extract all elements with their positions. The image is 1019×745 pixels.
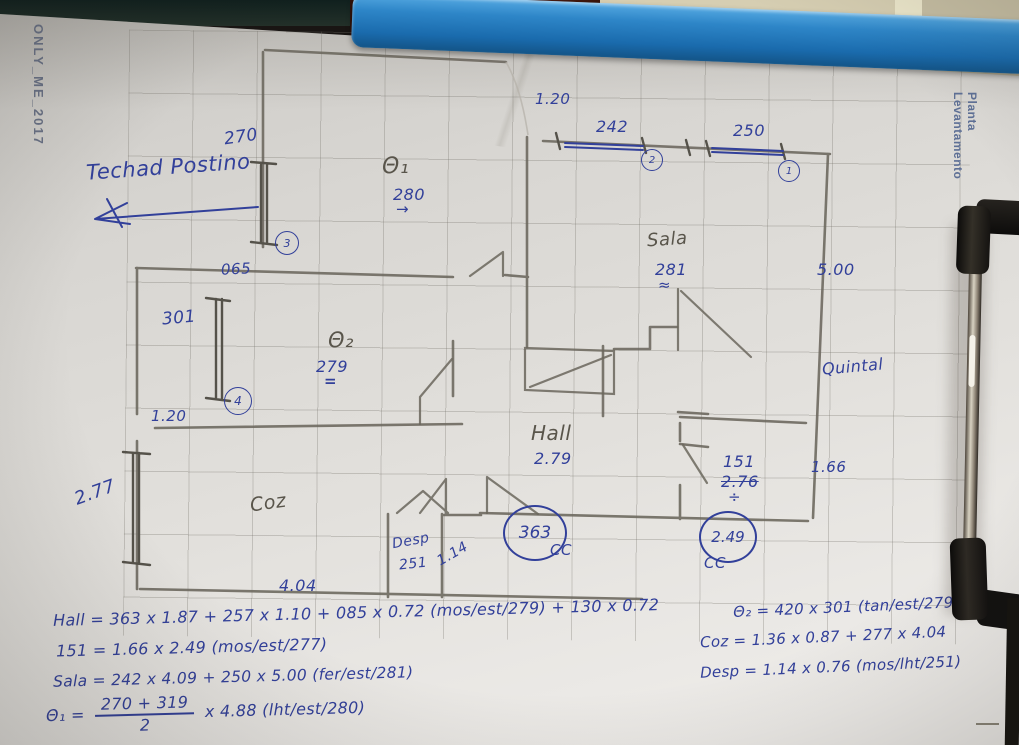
dim-166: 1.66 [811, 458, 846, 476]
door-width-363: 363 [503, 505, 567, 561]
dim-151-mark: ÷ [728, 488, 741, 506]
door-swings [397, 252, 751, 514]
room-q1-label: Θ₁ [382, 154, 409, 179]
door-363-value: 363 [519, 523, 551, 543]
room-q2-label: Θ₂ [328, 328, 354, 352]
clip-bottom-grip [950, 537, 989, 620]
window-marker-2: 2 [641, 149, 663, 171]
room-151-label: 151 [723, 452, 755, 471]
marker-2-number: 2 [649, 155, 655, 166]
plan-side-title: Planta Levantamento [951, 92, 979, 179]
door-width-249: 2.49 [699, 511, 757, 563]
dim-window-242: 242 [596, 117, 628, 136]
dim-500: 5.00 [817, 260, 855, 279]
dim-desp-height: 251 [398, 555, 428, 574]
room-hall-label: Hall [531, 421, 571, 445]
marker-4-number: 4 [234, 394, 242, 408]
dim-gap-120: 1.20 [535, 90, 570, 108]
dim-window-250: 250 [733, 121, 765, 140]
marker-3-number: 3 [284, 237, 291, 250]
window-marker-4: 4 [224, 387, 252, 415]
stairs-block [525, 348, 614, 394]
q2-height-mark: = [324, 372, 337, 390]
direction-arrow [95, 199, 258, 227]
marker-1-number: 1 [786, 166, 792, 177]
clip-top-grip [956, 205, 991, 274]
formula-q1-rhs: x 4.88 (lht/est/280) [205, 698, 366, 721]
paper-right-edge-shadow [1005, 598, 1019, 745]
formula-q1: Θ₁ = 270 + 319 2 x 4.88 (lht/est/280) [46, 688, 366, 737]
door-249-value: 2.49 [711, 528, 744, 546]
sala-height-mark: ≈ [658, 276, 671, 294]
formula-q1-denominator: 2 [95, 714, 195, 736]
room-sala-label: Sala [646, 228, 688, 252]
window-marker-3: 3 [275, 231, 299, 255]
formula-q1-lhs: Θ₁ = [46, 705, 85, 725]
dim-120-left: 1.20 [151, 407, 186, 425]
dim-404: 4.04 [279, 576, 317, 595]
pencil-dash [976, 723, 999, 725]
dim-hall-height: 2.79 [534, 449, 572, 468]
window-marker-1: 1 [778, 160, 800, 182]
watermark-text: ONLY_ME_2017 [31, 24, 46, 146]
formula-q1-fraction: 270 + 319 2 [95, 692, 195, 736]
paper-fold-line [506, 62, 528, 135]
dim-301: 301 [161, 307, 197, 330]
photo-of-floorplan-sketch: ONLY_ME_2017 Planta Levantamento Techad … [0, 0, 1019, 745]
clip-rod-highlight [968, 335, 975, 387]
q1-height-mark: → [396, 200, 409, 218]
dim-065: 065 [221, 259, 252, 279]
formula-q1-numerator: 270 + 319 [95, 692, 195, 717]
